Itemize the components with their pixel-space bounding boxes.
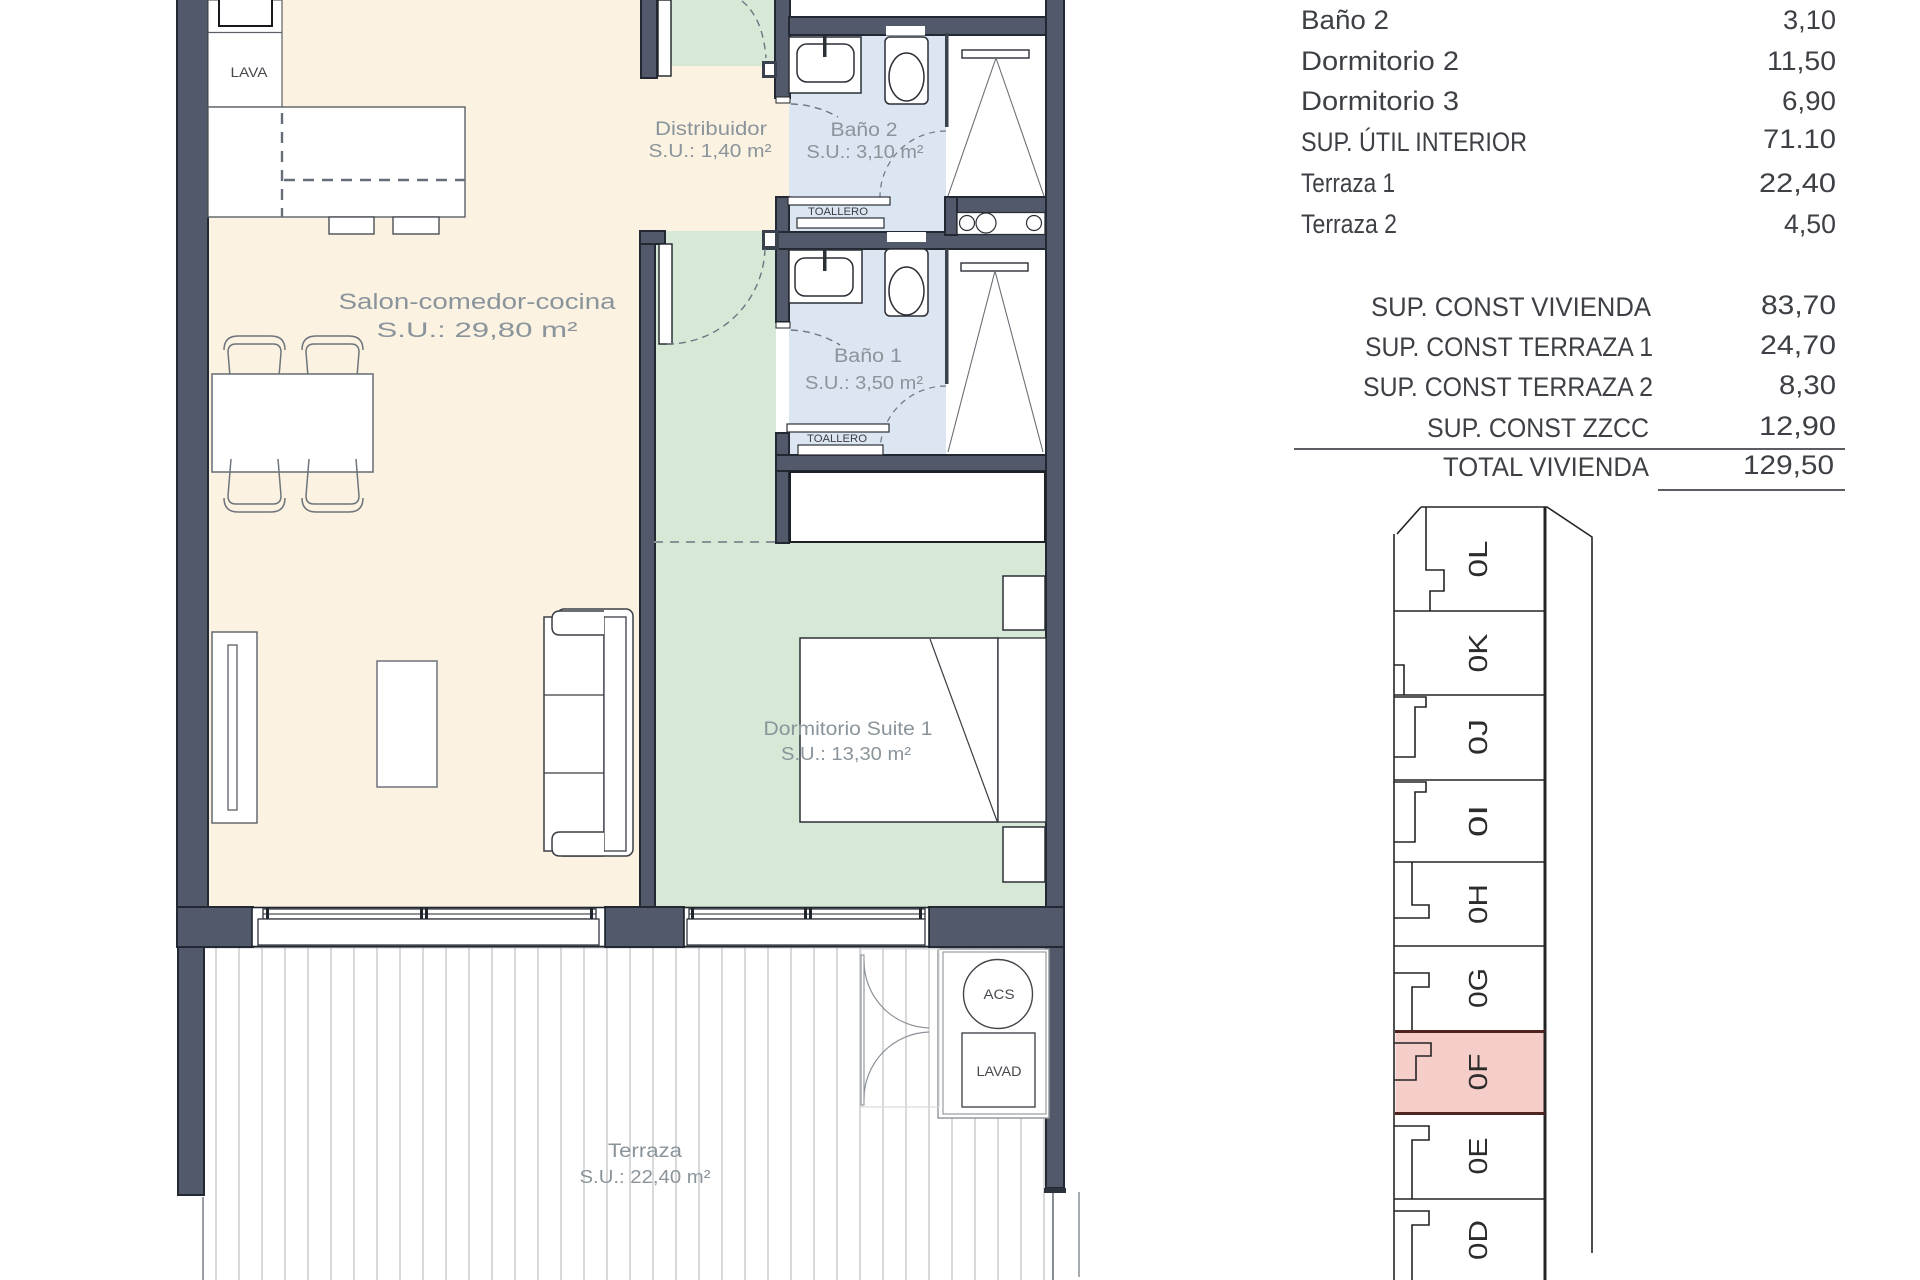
svg-text:0K: 0K [1463, 633, 1493, 673]
svg-text:Dormitorio Suite 1: Dormitorio Suite 1 [764, 718, 933, 740]
svg-text:TOALLERO: TOALLERO [807, 433, 867, 445]
svg-text:83,70: 83,70 [1761, 290, 1836, 320]
svg-text:TOALLERO: TOALLERO [808, 206, 868, 218]
svg-text:Baño 2: Baño 2 [831, 120, 898, 141]
svg-text:LAVAD: LAVAD [977, 1064, 1022, 1079]
svg-text:Dormitorio 3: Dormitorio 3 [1301, 86, 1459, 116]
svg-text:24,70: 24,70 [1760, 330, 1836, 360]
svg-text:8,30: 8,30 [1779, 370, 1836, 400]
svg-text:LAVA: LAVA [231, 64, 269, 80]
svg-text:Baño 1: Baño 1 [834, 346, 902, 367]
svg-text:Terraza 1: Terraza 1 [1301, 168, 1395, 198]
svg-text:SUP. ÚTIL INTERIOR: SUP. ÚTIL INTERIOR [1301, 126, 1527, 157]
svg-text:S.U.: 22,40 m²: S.U.: 22,40 m² [580, 1166, 711, 1187]
svg-text:0G: 0G [1463, 968, 1493, 1008]
svg-text:Baño 2: Baño 2 [1301, 5, 1389, 35]
svg-text:0L: 0L [1463, 541, 1493, 578]
svg-text:0E: 0E [1463, 1138, 1493, 1175]
svg-text:0H: 0H [1463, 884, 1493, 924]
svg-text:SUP. CONST VIVIENDA: SUP. CONST VIVIENDA [1371, 292, 1651, 322]
svg-text:0I: 0I [1463, 805, 1493, 837]
svg-text:SUP. CONST TERRAZA 2: SUP. CONST TERRAZA 2 [1363, 372, 1653, 402]
svg-text:Terraza 2: Terraza 2 [1301, 209, 1397, 239]
svg-text:Distribuidor: Distribuidor [655, 119, 768, 140]
svg-text:3,10: 3,10 [1783, 5, 1836, 35]
svg-text:22,40: 22,40 [1759, 168, 1836, 198]
svg-text:Dormitorio 2: Dormitorio 2 [1301, 46, 1459, 76]
svg-text:Terraza: Terraza [608, 1140, 682, 1162]
svg-text:S.U.: 3,10 m²: S.U.: 3,10 m² [807, 141, 924, 162]
svg-text:4,50: 4,50 [1784, 209, 1836, 239]
svg-text:0J: 0J [1463, 719, 1493, 755]
svg-text:SUP. CONST ZZCC: SUP. CONST ZZCC [1427, 413, 1649, 443]
svg-text:129,50: 129,50 [1743, 450, 1834, 480]
svg-text:11,50: 11,50 [1767, 46, 1836, 76]
svg-text:S.U.: 29,80 m²: S.U.: 29,80 m² [377, 319, 578, 342]
svg-text:ACS: ACS [984, 987, 1015, 1002]
svg-text:0D: 0D [1463, 1220, 1493, 1260]
svg-text:S.U.: 13,30 m²: S.U.: 13,30 m² [781, 743, 911, 764]
svg-text:0F: 0F [1463, 1054, 1493, 1091]
svg-text:71.10: 71.10 [1763, 124, 1836, 154]
svg-text:TOTAL VIVIENDA: TOTAL VIVIENDA [1443, 452, 1649, 482]
svg-text:S.U.: 3,50 m²: S.U.: 3,50 m² [805, 372, 923, 393]
svg-text:12,90: 12,90 [1759, 411, 1836, 441]
svg-text:SUP. CONST TERRAZA 1: SUP. CONST TERRAZA 1 [1365, 332, 1653, 362]
svg-text:S.U.: 1,40 m²: S.U.: 1,40 m² [649, 140, 772, 161]
svg-text:6,90: 6,90 [1782, 86, 1836, 116]
svg-text:Salon-comedor-cocina: Salon-comedor-cocina [339, 289, 617, 314]
